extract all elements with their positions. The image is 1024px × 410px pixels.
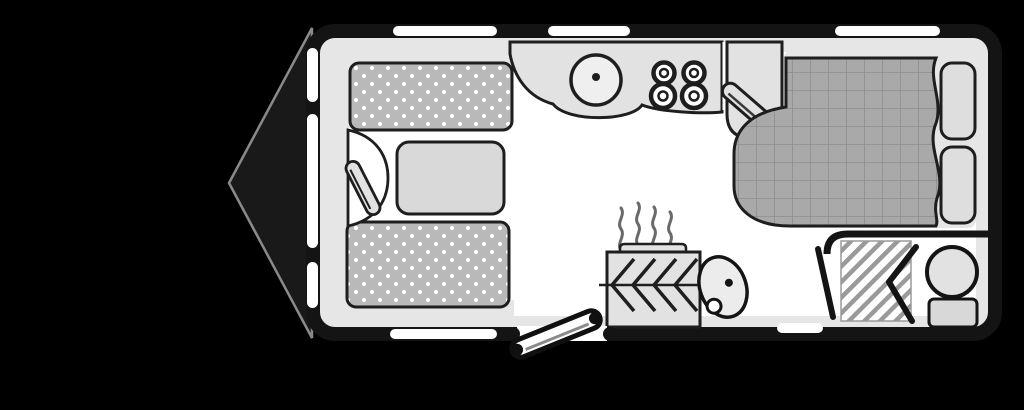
window (393, 26, 497, 36)
shower (841, 241, 911, 321)
lounge-table (397, 142, 504, 214)
window (307, 262, 318, 308)
window (835, 26, 940, 36)
space-heater (599, 244, 700, 327)
offside-sofa (350, 63, 512, 130)
wall-end-cap (603, 327, 617, 341)
window (390, 329, 497, 339)
caravan-floorplan-canvas (0, 0, 1024, 410)
sink (571, 55, 621, 105)
window (777, 323, 823, 333)
toilet (927, 247, 977, 327)
window (307, 114, 318, 248)
window (307, 48, 318, 102)
nearside-sofa (347, 222, 509, 307)
caravan-floorplan (0, 0, 1024, 410)
window (548, 26, 630, 36)
